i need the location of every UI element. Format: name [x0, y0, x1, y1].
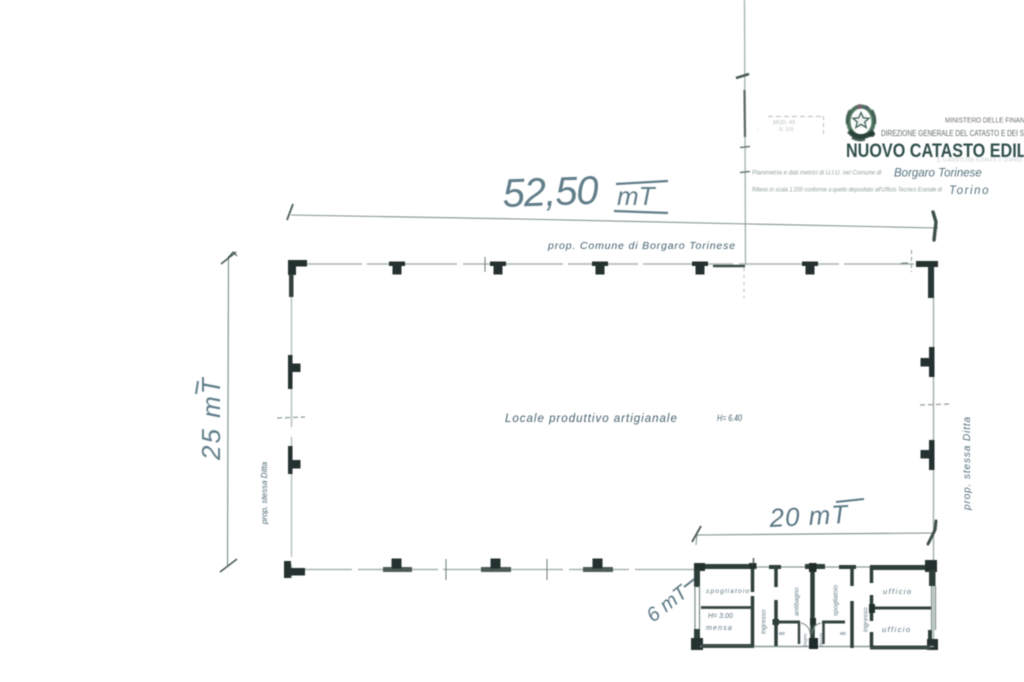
svg-text:N. 315: N. 315 — [779, 127, 794, 133]
svg-text:H= 3.00: H= 3.00 — [708, 613, 733, 620]
svg-text:spogliatoio: spogliatoio — [706, 588, 750, 595]
svg-text:ingresso: ingresso — [863, 607, 870, 632]
svg-text:prop. stessa Ditta: prop. stessa Ditta — [962, 416, 973, 511]
svg-text:6 mT: 6 mT — [643, 580, 694, 626]
svg-text:mensa: mensa — [706, 625, 733, 632]
svg-text:Rilievo in scala 1:200 con: Rilievo in scala 1:200 conforme a quello… — [752, 188, 943, 194]
svg-text:ingresso: ingresso — [761, 609, 768, 634]
svg-text:ufficio: ufficio — [882, 625, 911, 634]
svg-text:20 mT: 20 mT — [768, 499, 850, 533]
svg-text:MOD. 45: MOD. 45 — [773, 120, 796, 126]
svg-text:Borgaro Torinese: Borgaro Torinese — [894, 168, 982, 180]
svg-text:wc: wc — [779, 631, 786, 637]
svg-text:spogliatoio: spogliatoio — [833, 585, 840, 616]
svg-text:,: , — [757, 126, 759, 132]
svg-text:Locale produttivo artigianal: Locale produttivo artigianale — [505, 413, 678, 425]
svg-text:H= 6.40: H= 6.40 — [717, 413, 743, 424]
svg-text:25 mT: 25 mT — [196, 376, 226, 461]
svg-text:MINISTERO DELLE FINANZE: MINISTERO DELLE FINANZE — [945, 116, 1024, 125]
svg-text:bagno: bagno — [803, 633, 808, 646]
svg-text:DIREZIONE GENERALE DEL CATASTO: DIREZIONE GENERALE DEL CATASTO E DEI SER… — [881, 128, 1024, 138]
svg-text:(L. 11 AGOSTO 1939. N.1249 E: (L. 11 AGOSTO 1939. N.1249 E R. D. 13 AP… — [937, 158, 1024, 164]
svg-text:antibagno: antibagno — [794, 587, 801, 616]
svg-text:Torino: Torino — [949, 185, 990, 197]
svg-text:Planimetria e dati metrici: Planimetria e dati metrici di U.I.U. nel… — [752, 171, 882, 177]
svg-text:prop. stessa Ditta: prop. stessa Ditta — [260, 461, 269, 525]
svg-text:doccia: doccia — [819, 632, 824, 646]
svg-text:52,50: 52,50 — [502, 169, 599, 216]
svg-text:prop. Comune di Borgaro Torin: prop. Comune di Borgaro Torinese — [547, 240, 736, 252]
svg-text:mT: mT — [617, 181, 657, 211]
svg-text:ufficio: ufficio — [883, 587, 912, 596]
svg-text:wc: wc — [840, 631, 847, 637]
